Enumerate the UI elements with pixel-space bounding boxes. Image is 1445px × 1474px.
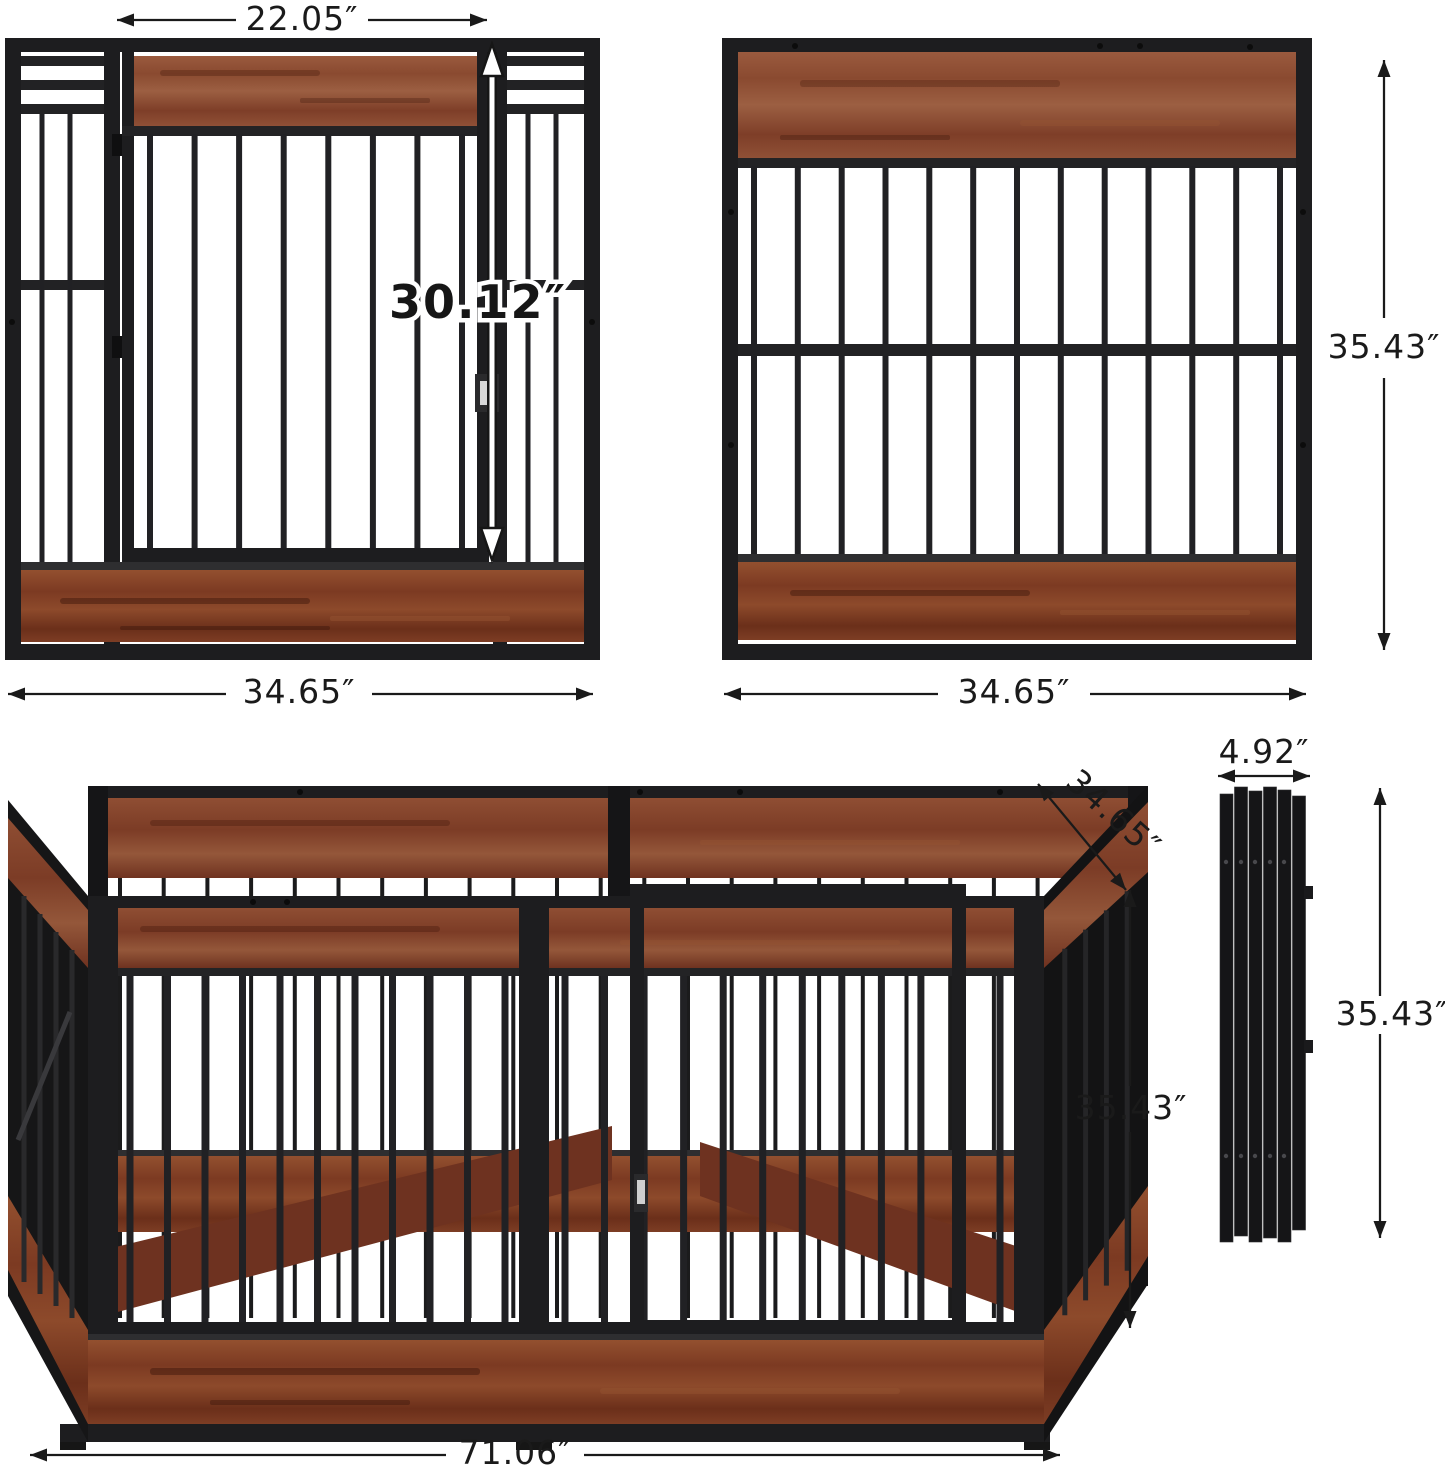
bar xyxy=(997,976,1004,1322)
arrowhead-icon xyxy=(1378,633,1391,650)
bar xyxy=(314,976,321,1322)
arrowhead-icon xyxy=(30,1449,47,1462)
folded-slats xyxy=(1220,787,1306,1242)
view-plain-panel xyxy=(722,38,1312,660)
bar xyxy=(680,976,687,1322)
arrowhead-icon xyxy=(117,14,134,27)
bar xyxy=(164,976,171,1322)
bar xyxy=(878,976,885,1322)
bar xyxy=(1233,166,1239,556)
bar xyxy=(795,166,801,556)
bar xyxy=(1102,166,1108,556)
bar xyxy=(281,134,287,548)
bar xyxy=(799,976,806,1322)
bar xyxy=(720,976,727,1322)
bar xyxy=(147,134,153,548)
bar xyxy=(502,976,509,1322)
bar xyxy=(464,976,471,1322)
bar xyxy=(202,976,209,1322)
bar xyxy=(352,976,359,1322)
folded-slat xyxy=(1293,796,1306,1230)
bar xyxy=(427,976,434,1322)
arrowhead-icon xyxy=(1374,788,1387,805)
bar xyxy=(68,114,73,562)
bar xyxy=(751,166,757,556)
bar xyxy=(970,166,976,556)
arrowhead-icon xyxy=(724,688,741,701)
bar xyxy=(926,166,932,556)
folded-slat xyxy=(1235,787,1248,1236)
door-panel-right-bars xyxy=(526,114,559,562)
bar xyxy=(325,134,331,548)
hinge-knob-icon xyxy=(1304,1040,1313,1053)
front-bottom-plank xyxy=(88,1340,1044,1424)
bar xyxy=(459,134,465,548)
bar xyxy=(554,114,559,562)
front-wood-rail xyxy=(88,908,1044,968)
dim-label-door-height: 30.12″ xyxy=(389,275,567,329)
bar xyxy=(526,114,531,562)
bar xyxy=(838,976,845,1322)
bar xyxy=(1146,166,1152,556)
arrowhead-icon xyxy=(1293,770,1310,783)
bar xyxy=(40,114,45,562)
bar xyxy=(389,976,396,1322)
bar xyxy=(883,166,889,556)
bar xyxy=(917,976,924,1322)
bar xyxy=(601,976,608,1322)
top-rail xyxy=(5,38,600,52)
dim-label-door-panel-width: 34.65″ xyxy=(243,672,356,711)
plain-panel-bars xyxy=(751,166,1283,556)
dim-label-door-width: 22.05″ xyxy=(246,0,359,38)
dim-label-pen-width: 71.06″ xyxy=(459,1433,572,1472)
bar xyxy=(127,976,134,1322)
folded-slat xyxy=(1249,791,1262,1242)
dim-label-stack-width: 4.92″ xyxy=(1219,732,1310,771)
left-post xyxy=(5,40,21,660)
bar xyxy=(562,976,569,1322)
bar xyxy=(839,166,845,556)
top-wood-panel xyxy=(738,52,1296,158)
bar xyxy=(759,976,766,1322)
dim-label-pen-height: 35.43″ xyxy=(1075,1088,1188,1127)
bar xyxy=(1277,166,1283,556)
dim-label-stack-height: 35.43″ xyxy=(1336,994,1445,1033)
dim-label-plain-panel-height: 35.43″ xyxy=(1328,327,1441,366)
bar xyxy=(236,134,242,548)
arrowhead-icon xyxy=(576,688,593,701)
view-folded-stack xyxy=(1220,787,1313,1242)
dim-label-plain-panel-width: 34.65″ xyxy=(958,672,1071,711)
bar xyxy=(192,134,198,548)
view-door-panel xyxy=(5,38,600,660)
bar xyxy=(1014,166,1020,556)
arrowhead-icon xyxy=(1124,1311,1137,1328)
door-bars xyxy=(147,134,465,548)
arrowhead-icon xyxy=(470,14,487,27)
bottom-rail xyxy=(5,644,600,660)
bar xyxy=(1189,166,1195,556)
bar xyxy=(370,134,376,548)
arrowhead-icon xyxy=(1374,1221,1387,1238)
folded-slat xyxy=(1264,787,1277,1238)
arrowhead-icon xyxy=(1378,60,1391,77)
hinge-knob-icon xyxy=(1304,886,1313,899)
view-assembled-pen xyxy=(8,786,1148,1450)
bar xyxy=(239,976,246,1322)
arrowhead-icon xyxy=(8,688,25,701)
arrowhead-icon xyxy=(1043,1449,1060,1462)
arrowhead-icon xyxy=(1289,688,1306,701)
arrowhead-icon xyxy=(1218,770,1235,783)
bottom-wood-plank xyxy=(738,562,1296,640)
bar xyxy=(277,976,284,1322)
folded-slat xyxy=(1278,790,1291,1242)
door-wood-panel xyxy=(134,56,477,126)
product-dimension-image: 22.05″ 30.12″ 34.65″ 34.65″ 35.43″ 34.65… xyxy=(0,0,1445,1474)
bottom-wood-plank xyxy=(21,570,584,642)
diagram-canvas: 22.05″ 30.12″ 34.65″ 34.65″ 35.43″ 34.65… xyxy=(0,0,1445,1474)
right-post xyxy=(584,40,600,660)
door-panel-left-bars xyxy=(40,114,73,562)
bar xyxy=(1058,166,1064,556)
bar xyxy=(414,134,420,548)
